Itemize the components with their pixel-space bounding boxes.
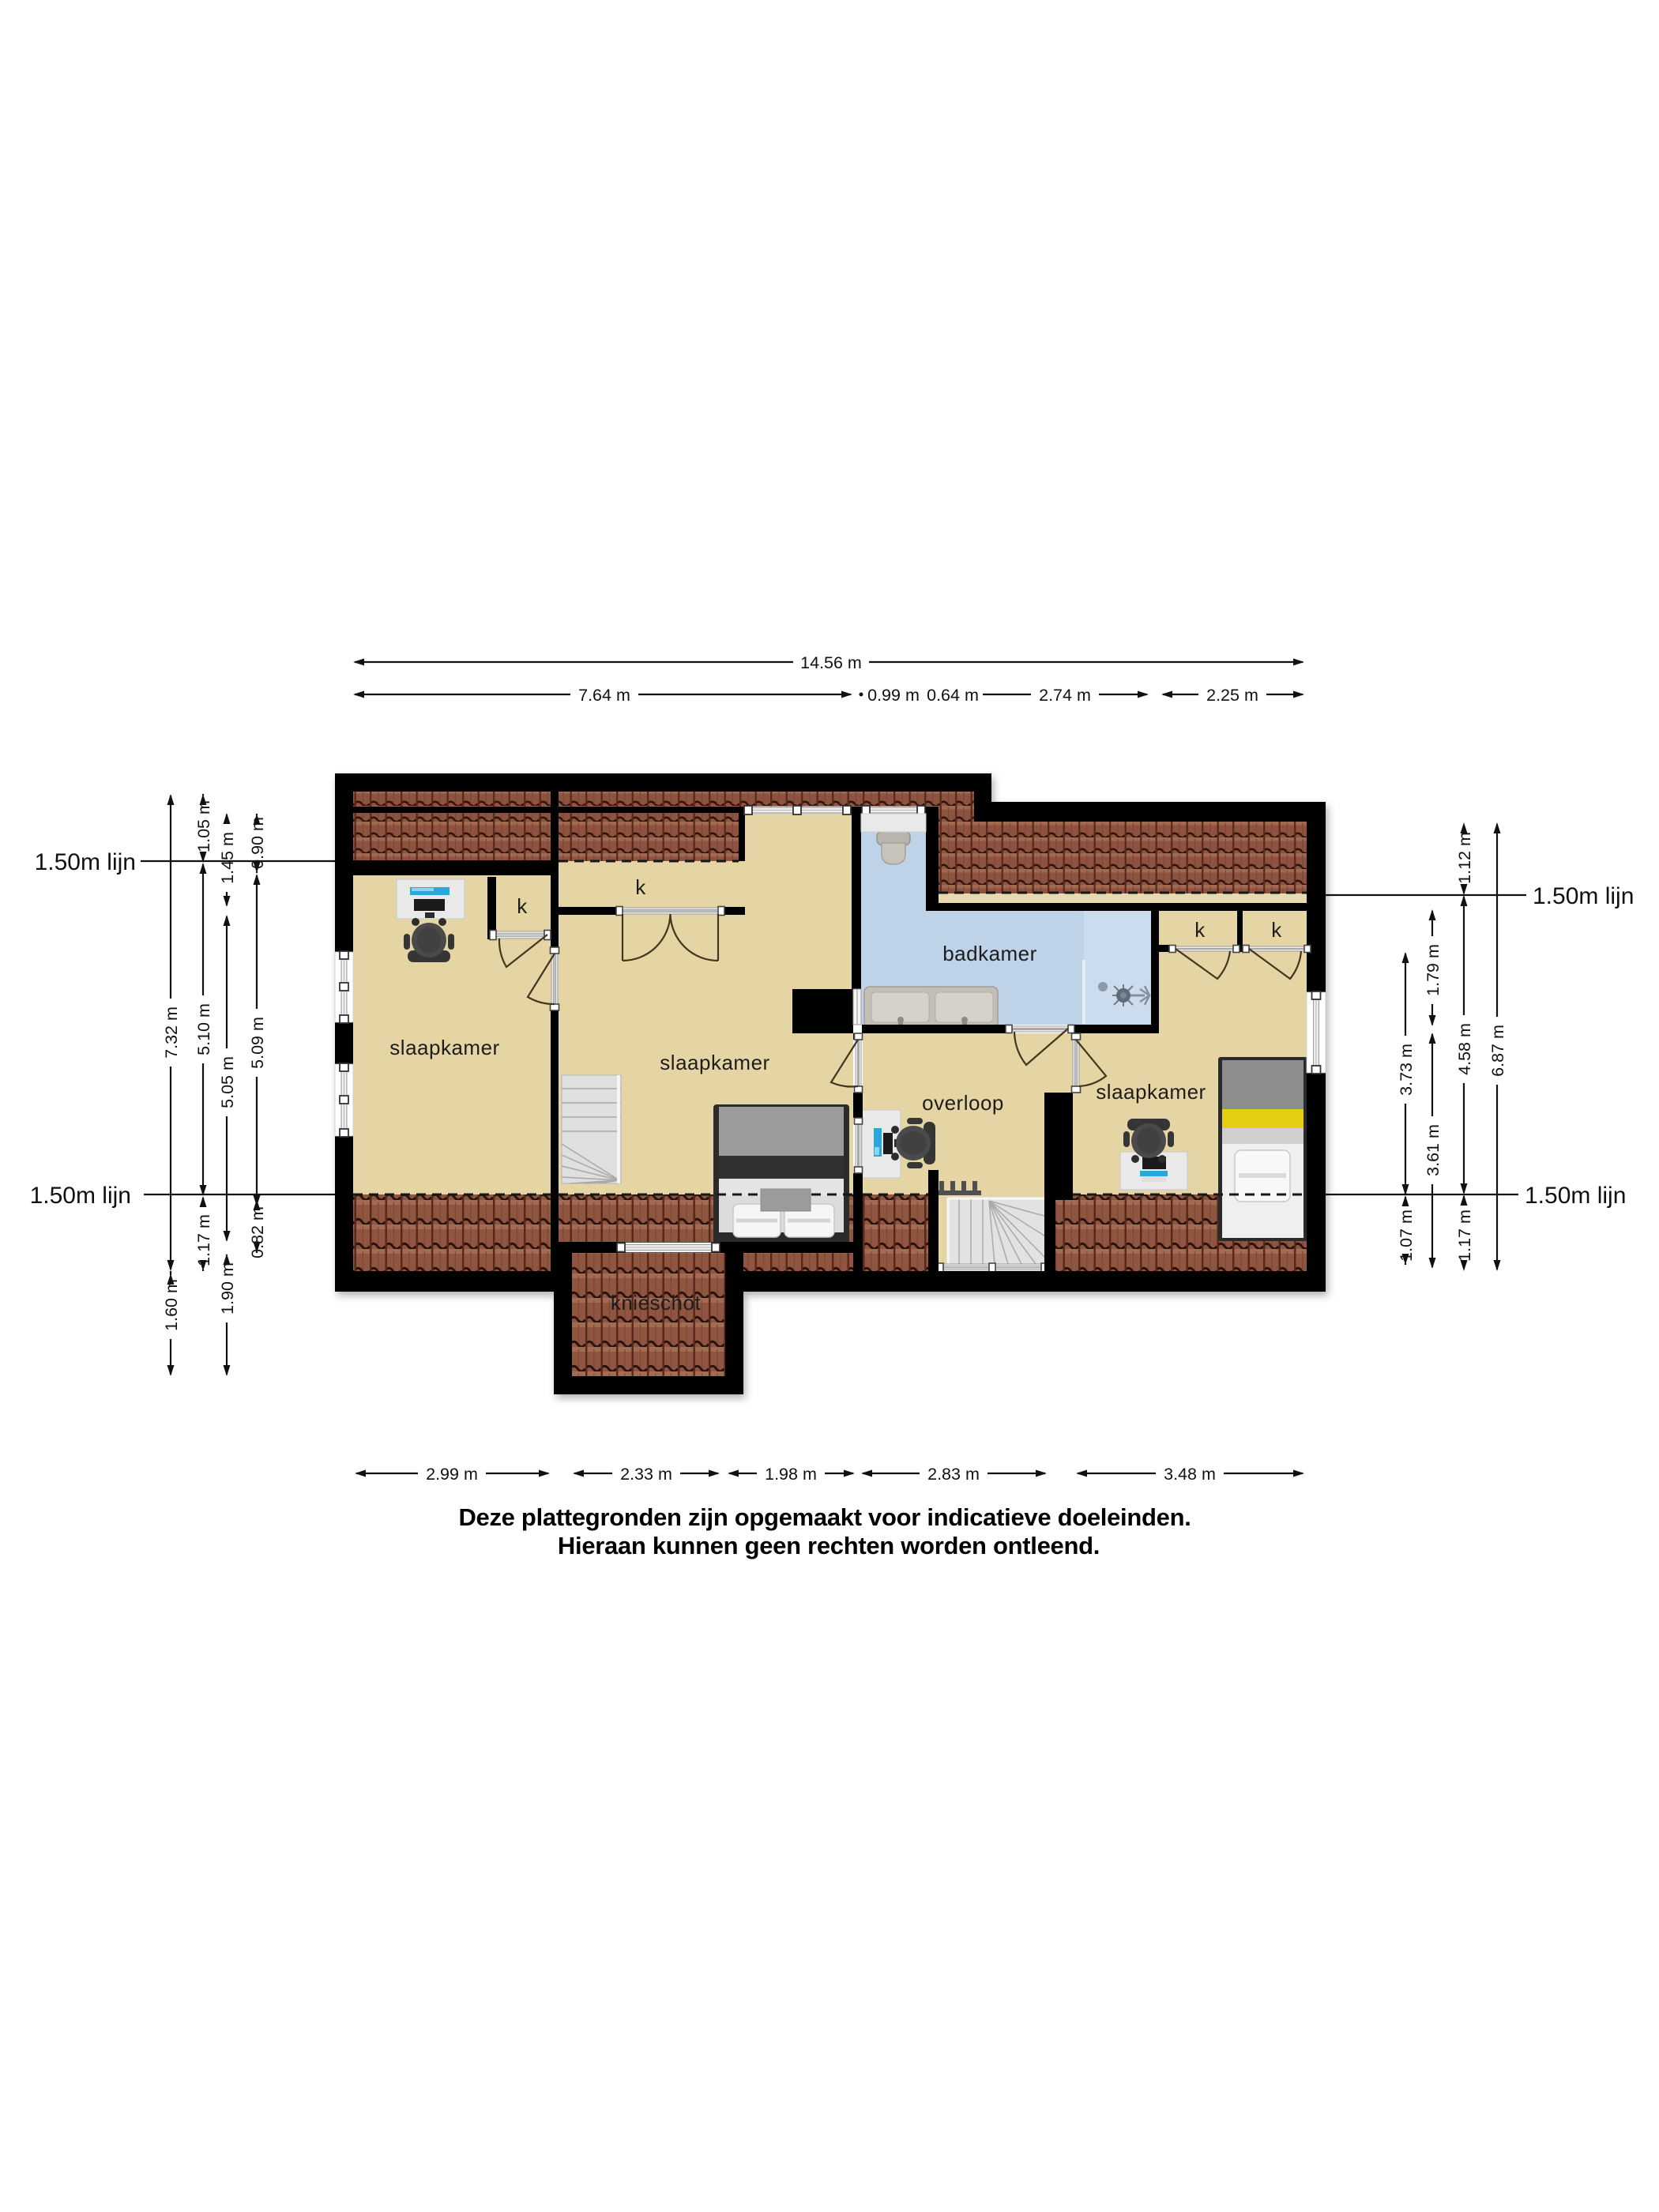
svg-text:k: k xyxy=(635,875,646,899)
svg-text:0.64 m: 0.64 m xyxy=(927,686,979,705)
svg-text:k: k xyxy=(1271,918,1282,942)
svg-text:1.50m lijn: 1.50m lijn xyxy=(30,1183,131,1209)
svg-text:5.05 m: 5.05 m xyxy=(218,1056,237,1108)
svg-text:slaapkamer: slaapkamer xyxy=(1096,1080,1206,1104)
svg-text:6.87 m: 6.87 m xyxy=(1488,1025,1507,1077)
svg-text:3.61 m: 3.61 m xyxy=(1424,1124,1443,1176)
svg-text:3.48 m: 3.48 m xyxy=(1164,1465,1216,1484)
svg-text:1.90 m: 1.90 m xyxy=(218,1262,237,1315)
svg-text:2.33 m: 2.33 m xyxy=(620,1465,672,1484)
svg-text:overloop: overloop xyxy=(922,1091,1004,1115)
svg-text:0.99 m: 0.99 m xyxy=(867,686,920,705)
svg-text:slaapkamer: slaapkamer xyxy=(660,1051,769,1074)
svg-text:k: k xyxy=(1194,918,1206,942)
svg-text:0.82 m: 0.82 m xyxy=(248,1206,267,1258)
svg-text:slaapkamer: slaapkamer xyxy=(389,1036,499,1059)
svg-text:7.64 m: 7.64 m xyxy=(578,686,630,705)
svg-text:1.50m lijn: 1.50m lijn xyxy=(35,849,136,875)
svg-text:k: k xyxy=(517,894,528,918)
svg-text:0.90 m: 0.90 m xyxy=(248,817,267,869)
svg-text:5.09 m: 5.09 m xyxy=(248,1017,267,1069)
svg-text:1.98 m: 1.98 m xyxy=(765,1465,817,1484)
svg-text:1.50m lijn: 1.50m lijn xyxy=(1525,1183,1626,1209)
svg-text:1.79 m: 1.79 m xyxy=(1424,944,1443,996)
svg-text:1.50m lijn: 1.50m lijn xyxy=(1533,883,1634,909)
svg-text:1.07 m: 1.07 m xyxy=(1397,1209,1416,1262)
svg-text:knieschot: knieschot xyxy=(611,1291,702,1315)
svg-text:5.10 m: 5.10 m xyxy=(194,1003,213,1055)
svg-text:Deze plattegronden zijn opgema: Deze plattegronden zijn opgemaakt voor i… xyxy=(458,1503,1191,1531)
svg-text:2.99 m: 2.99 m xyxy=(426,1465,478,1484)
svg-text:7.32 m: 7.32 m xyxy=(162,1006,181,1059)
svg-text:2.83 m: 2.83 m xyxy=(927,1465,980,1484)
svg-text:badkamer: badkamer xyxy=(942,942,1037,965)
svg-text:1.12 m: 1.12 m xyxy=(1455,832,1474,884)
svg-text:1.45 m: 1.45 m xyxy=(218,832,237,884)
svg-text:4.58 m: 4.58 m xyxy=(1455,1023,1474,1075)
svg-text:1.17 m: 1.17 m xyxy=(194,1214,213,1266)
svg-text:1.17 m: 1.17 m xyxy=(1455,1209,1474,1262)
svg-text:1.05 m: 1.05 m xyxy=(194,800,213,852)
svg-text:1.60 m: 1.60 m xyxy=(162,1279,181,1331)
svg-text:3.73 m: 3.73 m xyxy=(1397,1044,1416,1096)
svg-text:2.25 m: 2.25 m xyxy=(1206,686,1258,705)
svg-text:14.56 m: 14.56 m xyxy=(800,653,862,672)
svg-text:Hieraan kunnen geen rechten wo: Hieraan kunnen geen rechten worden ontle… xyxy=(558,1532,1100,1559)
svg-text:2.74 m: 2.74 m xyxy=(1039,686,1091,705)
